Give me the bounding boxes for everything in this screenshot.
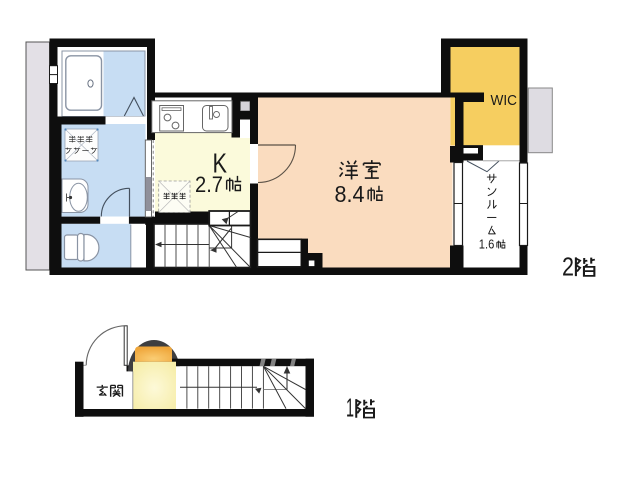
svg-text:1.6: 1.6	[479, 238, 495, 252]
svg-text:8.4: 8.4	[335, 181, 365, 207]
svg-text:2.7: 2.7	[195, 172, 223, 197]
svg-text:WIC: WIC	[491, 93, 518, 109]
svg-text:2: 2	[562, 251, 574, 281]
svg-text:1: 1	[346, 393, 354, 423]
